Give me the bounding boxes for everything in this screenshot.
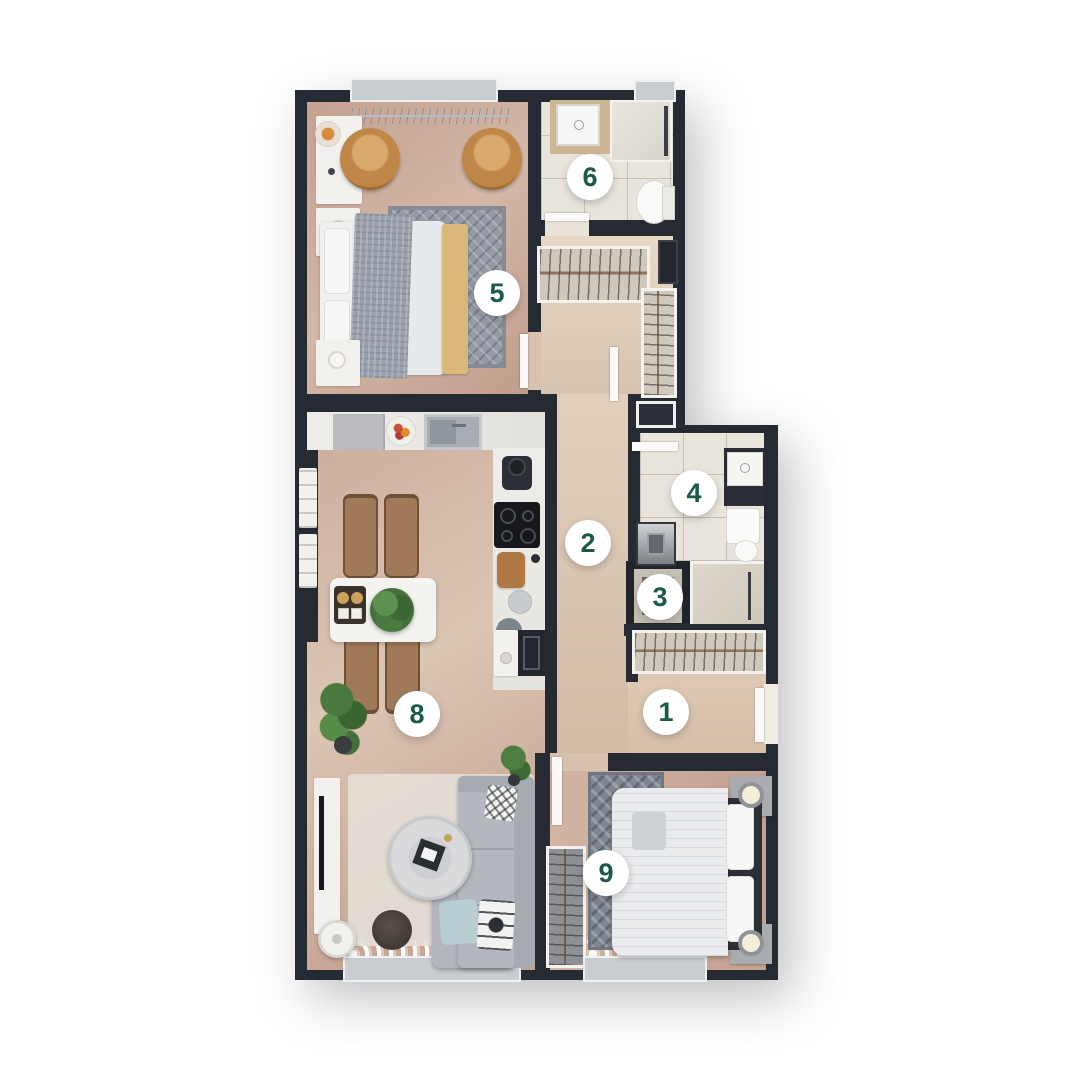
room-badge-2-label: 2 [580,530,595,557]
vent-shaft-core [647,533,665,555]
wall-bedroom9-top [608,753,768,771]
bed-5-pillow-1 [324,228,350,294]
room-badge-8-label: 8 [409,701,424,728]
lamp-bedroom-9-top [738,782,764,808]
pillow-diamond [484,784,518,822]
plant-living-small-pot [508,774,520,786]
wall-kitchen-hall [545,394,557,676]
room-badge-2: 2 [565,520,611,566]
dining-chair-1 [343,494,378,578]
burner-2 [522,510,534,522]
fridge [333,414,385,450]
sink-4-drain [740,463,750,473]
tv-screen [319,796,324,890]
pepper-mill [531,554,540,563]
bed-9-folded-blanket [632,812,666,850]
room-badge-5: 5 [474,270,520,316]
toilet-6-tank [662,186,675,220]
floor-lamp-core [332,934,342,944]
shower-bath-6 [610,100,672,162]
room-badge-6: 6 [567,154,613,200]
espresso-cup-2 [351,608,362,619]
room-badge-9-label: 9 [598,860,613,887]
entry-door-gap [764,684,778,744]
floor-hall-2 [557,394,628,755]
cutting-board [497,552,525,588]
wall-shelf-niche-2 [299,534,317,588]
bowl-gray-1 [508,590,532,614]
armchair-right [462,128,522,190]
desk-item-dot [328,168,335,175]
toilet-4-bowl [734,540,758,562]
door-gap-bedroom-5 [528,332,541,390]
room-badge-3: 3 [637,574,683,620]
cabinet-knob [500,652,512,664]
coffee-table-gold-dot [444,834,452,842]
plant-living-large-pot [334,736,352,754]
burner-4 [520,528,536,544]
room-badge-8: 8 [394,691,440,737]
armchair-left [340,128,400,190]
wall-shelf-niche-1 [299,468,317,528]
wall-kitchen-top [295,394,557,412]
desk-lamp [315,121,341,147]
burner-3 [501,530,513,542]
bathroom-6-door [545,213,589,221]
shower-6-bar [664,106,668,156]
bedroom-5-door [520,334,528,388]
dining-chair-2 [384,494,419,578]
espresso-knob-1 [337,592,349,604]
shower-4-handle [748,572,751,620]
sofa-back [514,776,535,968]
lamp-bedroom-9-bottom [738,930,764,956]
espresso-cup-1 [338,608,349,619]
bed-9-mattress [612,788,728,956]
hall-duct [658,240,678,284]
floor-plan-canvas: 1 2 3 4 5 6 8 9 [0,0,1081,1081]
wardrobe-entry [632,630,766,674]
window-bathroom-6 [634,80,676,102]
room-badge-9: 9 [583,850,629,896]
tv-console [314,778,340,934]
room-badge-1-label: 1 [658,699,673,726]
door-gap-bath-6 [545,220,589,236]
hall-open-door-leaf [610,347,618,401]
bedroom-9-door [552,757,562,825]
room-badge-6-label: 6 [582,164,597,191]
candle-bottom [328,351,346,369]
table-plant [370,588,414,632]
shaft-box [636,401,676,428]
wardrobe-hall-vertical [641,288,677,398]
room-badge-1: 1 [643,689,689,735]
pouf [372,910,412,950]
coffee-machine-top [508,458,526,476]
room-badge-3-label: 3 [652,584,667,611]
espresso-knob-2 [351,592,363,604]
room-badge-4-label: 4 [686,480,701,507]
kitchen-faucet [452,424,466,427]
bathroom-4-door [632,442,678,451]
shower-4 [690,561,764,629]
wardrobe-bedroom-9 [546,846,586,968]
pillow-aztec [476,899,515,951]
fruit-bowl [386,416,416,446]
burner-1 [500,508,516,524]
window-bedroom-9 [583,956,707,982]
window-bedroom-5 [350,78,498,102]
bed-5-bench [442,224,468,374]
bed-9-pillow-1 [726,804,754,870]
room-badge-4: 4 [671,470,717,516]
entry-door [755,688,764,742]
sink-6-drain [574,120,584,130]
hanger-rail [352,108,510,124]
wardrobe-hall-horizontal [537,246,650,303]
toilet-4-tank [726,508,760,544]
room-badge-5-label: 5 [489,280,504,307]
pillow-blue [439,899,480,946]
oven-box-inner [523,636,540,670]
